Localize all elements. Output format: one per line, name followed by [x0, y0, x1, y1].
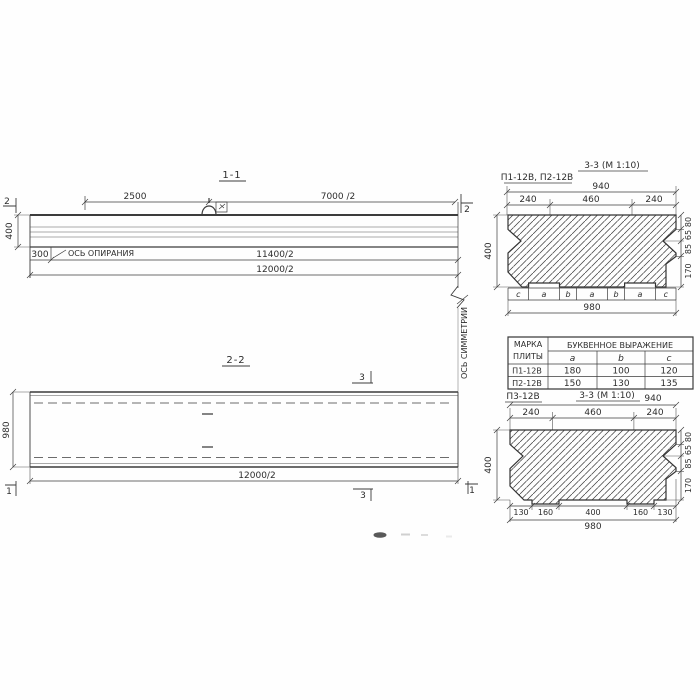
break-zigzag	[451, 286, 464, 308]
lifting-loop	[202, 198, 216, 215]
dim-170b-label: 170	[684, 478, 693, 493]
dim-460b: 460	[584, 408, 601, 418]
dim-240b-right: 240	[646, 408, 663, 418]
dim-80b-label: 80	[684, 432, 693, 442]
section-3-3b-mark: П3-12В	[506, 392, 539, 402]
section-3-3b-title: 3-3 (М 1:10)	[579, 391, 634, 401]
dim-400b-line	[494, 427, 500, 503]
plan-center-marks	[202, 414, 213, 447]
dim-160b-right: 160	[633, 508, 648, 517]
blueprint-canvas: 1-1 2500 7000 /2 2 2 400 ОСЬ ОПИРАНИЯ 30…	[0, 0, 700, 700]
dim-line-12000	[27, 272, 461, 278]
scan-mark-3	[446, 536, 452, 538]
cut-marker-2-left: 2	[4, 197, 10, 207]
dim-400b-bottom: 400	[585, 508, 600, 517]
table-row2-c: 135	[660, 379, 677, 389]
cross-section-body-p1-p2	[508, 215, 676, 287]
cut-marker-3-bottom: 3	[360, 491, 366, 501]
dim-980-label: 980	[2, 421, 12, 438]
scan-artifacts	[374, 532, 453, 538]
dim-980-extensions	[13, 392, 30, 467]
dim-240b-left: 240	[522, 408, 539, 418]
cross-section-body-p3	[510, 430, 676, 504]
dim-170a-label: 170	[684, 263, 693, 278]
cut-marker-3-top: 3	[359, 373, 365, 383]
letter-c-1: c	[516, 290, 521, 299]
dim-160b-left: 160	[538, 508, 553, 517]
scan-mark-1	[401, 534, 410, 536]
dim-height-label: 400	[5, 222, 15, 239]
prestress-strand-lines	[30, 227, 458, 237]
dim-length-label: 12000/2	[238, 471, 275, 481]
table-head-mark-line2: ПЛИТЫ	[513, 352, 543, 361]
table-col-b: b	[618, 354, 624, 364]
section-3-3-p3: П3-12В 3-3 (М 1:10) 940 240 460 240 400 …	[484, 391, 693, 532]
table-row2-a: 150	[564, 379, 581, 389]
dim-130b-right: 130	[657, 508, 672, 517]
dim-2500-label: 2500	[124, 192, 147, 202]
dim-80a-label: 80	[684, 217, 693, 227]
letter-b-1: b	[565, 290, 570, 299]
dim-400a-label: 400	[484, 242, 494, 259]
letter-a-2: a	[590, 290, 595, 299]
table-row1-mark: П1-12В	[512, 367, 542, 376]
dim-300-label: 300	[31, 250, 48, 260]
marks-table: МАРКА ПЛИТЫ БУКВЕННОЕ ВЫРАЖЕНИЕ a b c П1…	[508, 337, 693, 389]
dim-240a-left: 240	[519, 195, 536, 205]
section-3-3-p1-p2: 3-3 (М 1:10) П1-12В, П2-12В 940 240 460 …	[484, 161, 693, 316]
dim-12000-2-label: 12000/2	[256, 265, 293, 275]
table-row: П1-12В 180 100 120	[512, 367, 678, 377]
dim-940b-label: 940	[644, 394, 661, 404]
section-1-1: 1-1 2500 7000 /2 2 2 400 ОСЬ ОПИРАНИЯ 30…	[3, 170, 473, 278]
dim-height-line	[15, 212, 21, 250]
drawing-svg: 1-1 2500 7000 /2 2 2 400 ОСЬ ОПИРАНИЯ 30…	[0, 0, 700, 700]
section-2-2: 2-2 980 12000/2 3 3 1 1	[2, 355, 478, 501]
dim-240a-right: 240	[645, 195, 662, 205]
symmetry-axis: ОСЬ СИММЕТРИИ	[451, 202, 469, 392]
symmetry-axis-label: ОСЬ СИММЕТРИИ	[460, 307, 469, 379]
dim-65b-label: 65	[684, 445, 693, 455]
letter-c-2: c	[664, 290, 669, 299]
dim-height-extensions	[14, 215, 30, 247]
dim-460a: 460	[582, 195, 599, 205]
section-1-1-title: 1-1	[222, 170, 241, 181]
cut-marker-1-left: 1	[6, 487, 12, 497]
table-row2-b: 130	[612, 379, 629, 389]
section-2-2-title: 2-2	[226, 355, 245, 366]
scan-mark-2	[421, 534, 428, 536]
letter-a-3: a	[638, 290, 643, 299]
scan-smudge	[374, 532, 387, 538]
dim-85b-label: 85	[684, 458, 693, 468]
dim-400b-extensions	[493, 430, 510, 500]
section-3-3a-marks: П1-12В, П2-12В	[501, 173, 573, 183]
cut-marker-1-right: 1	[469, 486, 475, 496]
table-head-mark-line1: МАРКА	[514, 340, 543, 349]
dim-130b-left: 130	[513, 508, 528, 517]
dim-85a-label: 85	[684, 244, 693, 254]
table-row: П2-12В 150 130 135	[512, 379, 677, 389]
dim-980a-label: 980	[583, 303, 600, 313]
support-axis-label: ОСЬ ОПИРАНИЯ	[68, 249, 134, 258]
dim-980b-label: 980	[584, 522, 601, 532]
cut-marker-2-right: 2	[464, 205, 470, 215]
letter-b-2: b	[613, 290, 618, 299]
lifting-loop-tag	[216, 202, 227, 212]
table-row1-a: 180	[564, 367, 581, 377]
letter-a-1: a	[542, 290, 547, 299]
dim-400a-line	[494, 212, 500, 290]
table-row2-mark: П2-12В	[512, 379, 542, 388]
symmetry-label-flag	[457, 295, 468, 304]
table-row1-b: 100	[612, 367, 629, 377]
dim-940a-label: 940	[592, 182, 609, 192]
table-col-a: a	[570, 354, 576, 364]
table-col-c: c	[667, 354, 672, 364]
table-row1-c: 120	[660, 367, 677, 377]
section-3-3a-title: 3-3 (М 1:10)	[584, 161, 639, 171]
dim-65a-label: 65	[684, 230, 693, 240]
dim-11400-2-label: 11400/2	[256, 250, 293, 260]
dim-400b-label: 400	[484, 456, 494, 473]
dim-7000-2-label: 7000 /2	[321, 192, 356, 202]
plan-dashed-lines	[34, 403, 454, 458]
table-head-group: БУКВЕННОЕ ВЫРАЖЕНИЕ	[567, 341, 673, 350]
